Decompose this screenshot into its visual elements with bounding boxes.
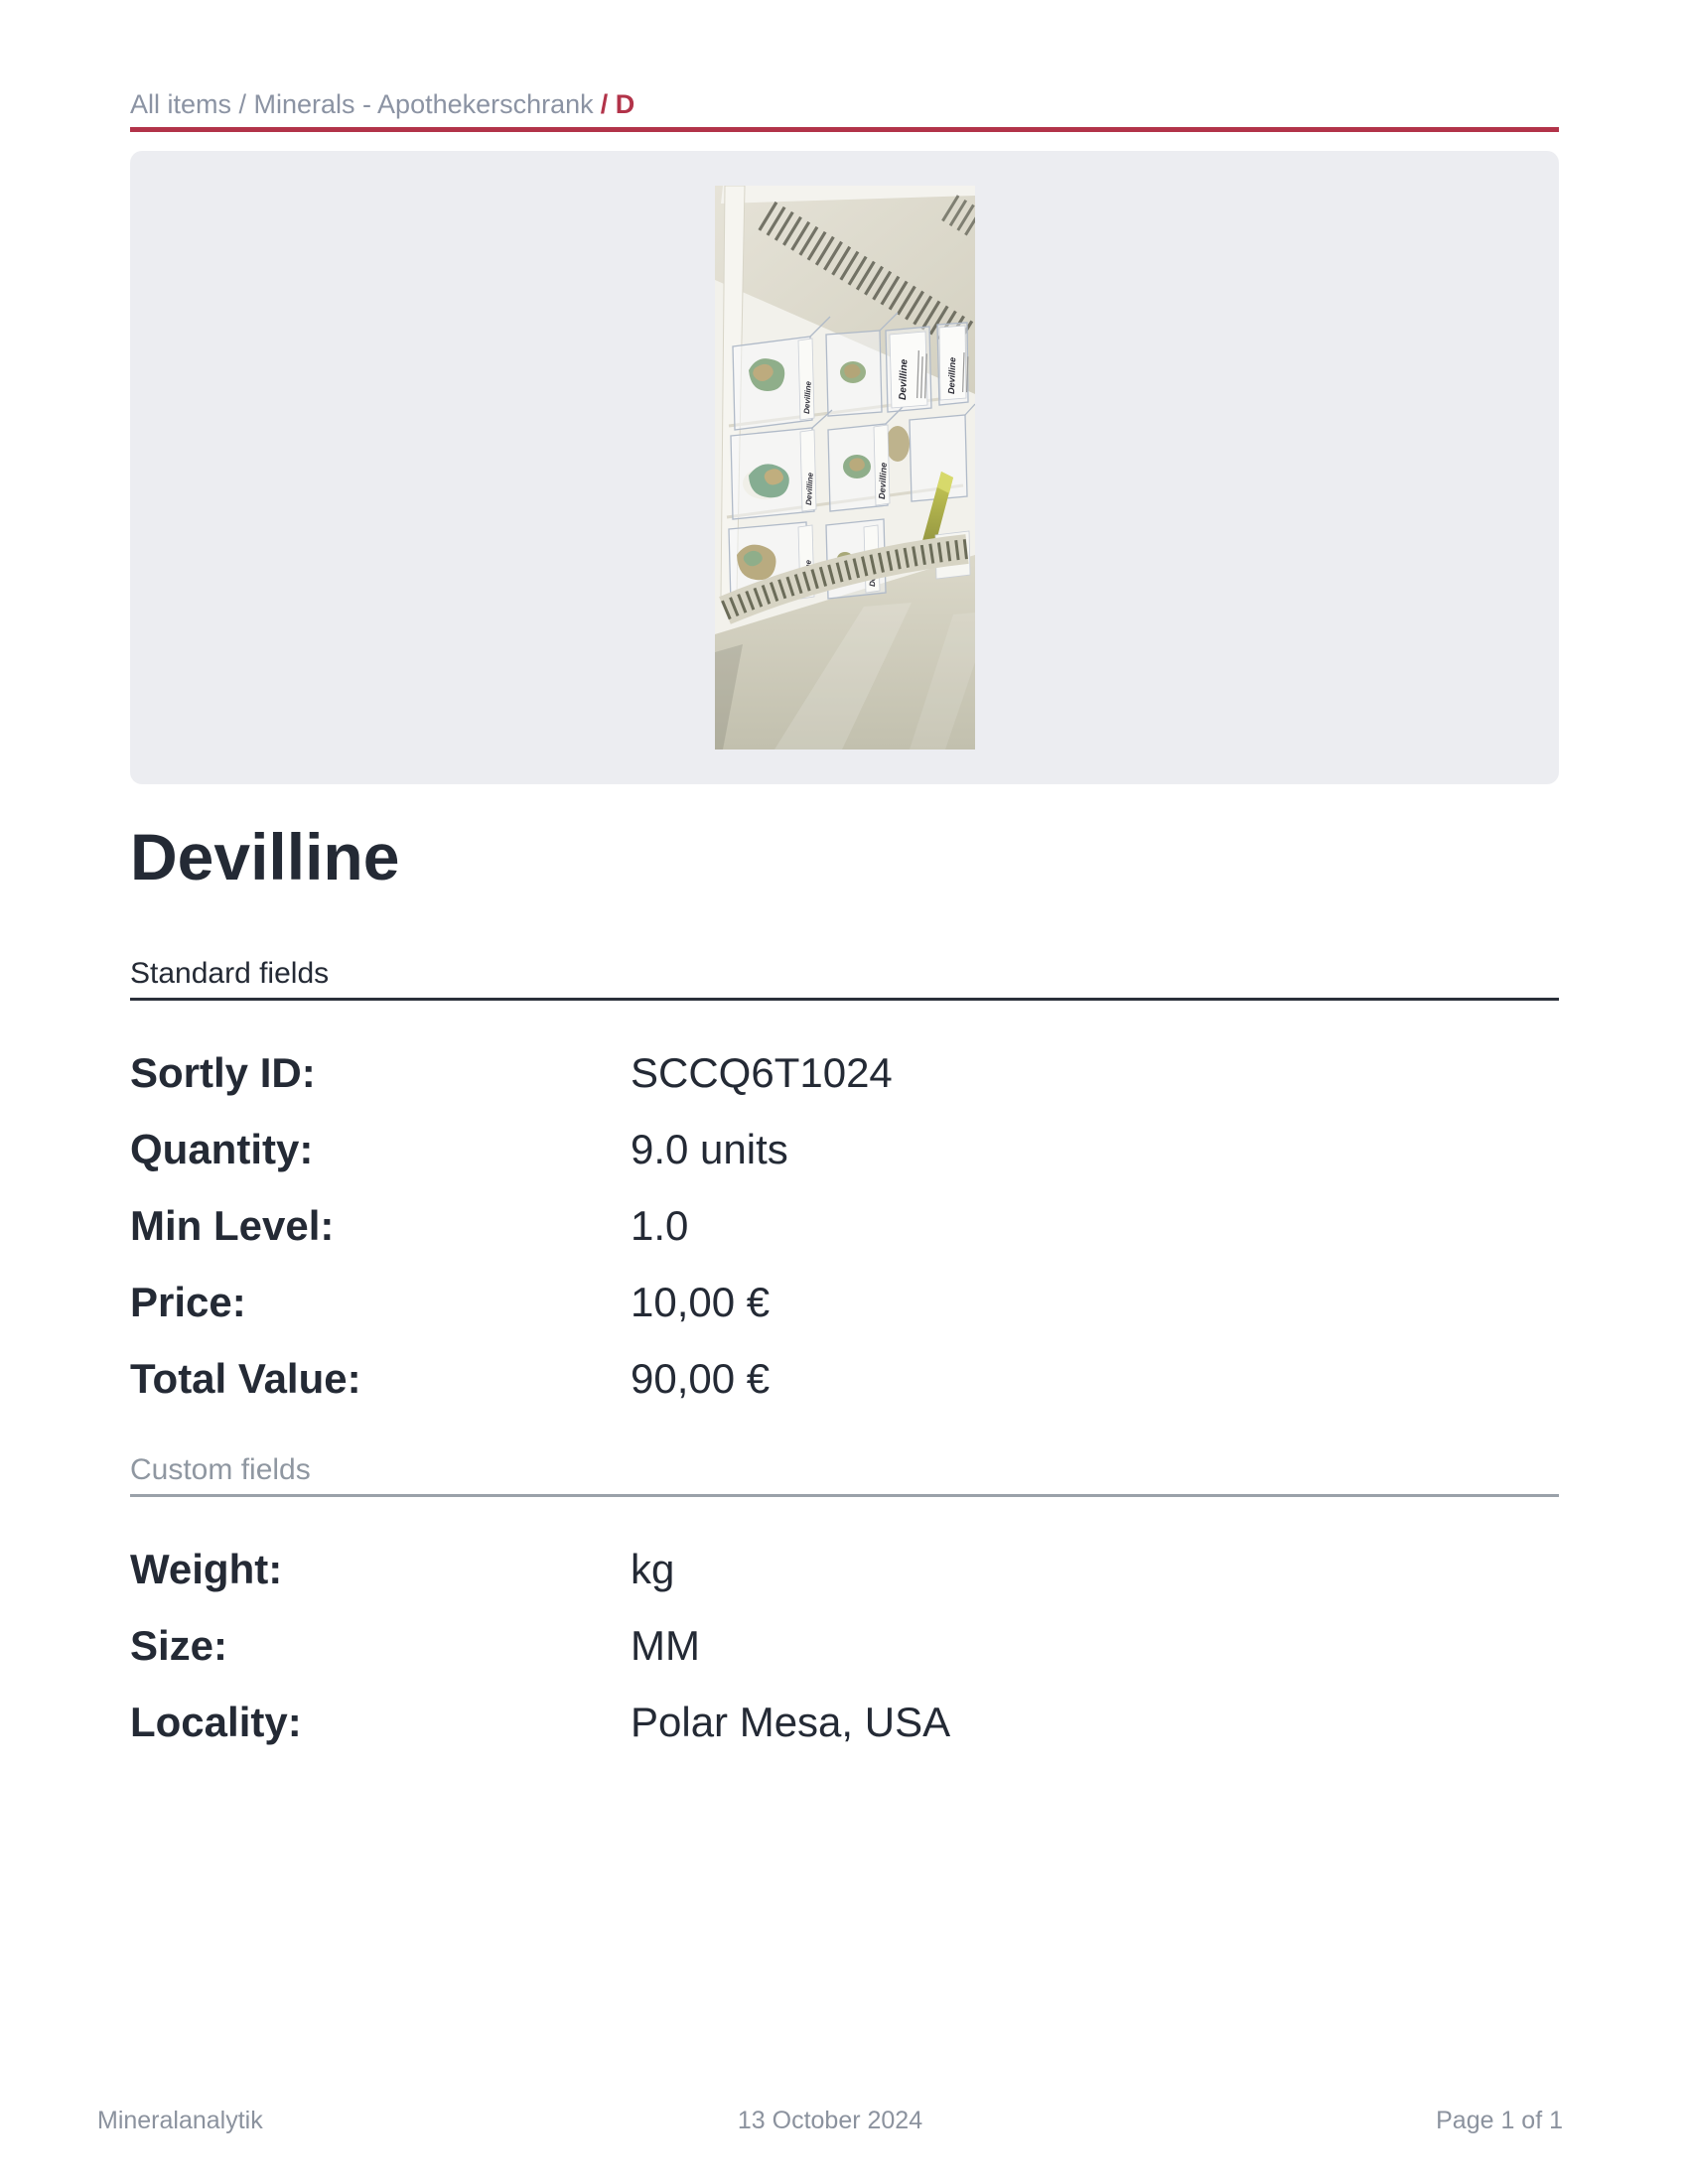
mineral-label-text: Devilline — [946, 357, 957, 394]
photo-panel: Devilline Devilline Devilline Devilline — [130, 151, 1559, 784]
document-page: All items / Minerals - Apothekerschrank/… — [0, 0, 1688, 2184]
field-value: kg — [631, 1545, 1559, 1594]
custom-fields-list: Weight: kg Size: MM Locality: Polar Mesa… — [130, 1545, 1559, 1747]
breadcrumb: All items / Minerals - Apothekerschrank/… — [130, 91, 1559, 132]
field-row-locality: Locality: Polar Mesa, USA — [130, 1698, 1559, 1747]
field-row-min-level: Min Level: 1.0 — [130, 1201, 1559, 1251]
field-row-size: Size: MM — [130, 1621, 1559, 1671]
field-value: 9.0 units — [631, 1125, 1559, 1174]
mineral-label-text: Devilline — [877, 463, 889, 499]
breadcrumb-path-link[interactable]: All items / Minerals - Apothekerschrank — [130, 89, 594, 119]
field-value: SCCQ6T1024 — [631, 1048, 1559, 1098]
footer-page-number: Page 1 of 1 — [1074, 2106, 1563, 2135]
section-heading-custom-fields: Custom fields — [130, 1455, 1559, 1497]
field-label: Total Value: — [130, 1354, 631, 1404]
page-footer: Mineralanalytik 13 October 2024 Page 1 o… — [97, 2106, 1563, 2135]
field-value: MM — [631, 1621, 1559, 1671]
field-value: Polar Mesa, USA — [631, 1698, 1559, 1747]
field-value: 10,00 € — [631, 1278, 1559, 1327]
content-column: All items / Minerals - Apothekerschrank/… — [130, 0, 1559, 1774]
mineral-label-text: Devilline — [898, 358, 910, 400]
page-title: Devilline — [130, 824, 1559, 889]
field-label: Min Level: — [130, 1201, 631, 1251]
mineral-label-text: Devilline — [802, 380, 813, 414]
field-label: Sortly ID: — [130, 1048, 631, 1098]
footer-company: Mineralanalytik — [97, 2106, 586, 2135]
field-row-price: Price: 10,00 € — [130, 1278, 1559, 1327]
section-heading-standard-fields: Standard fields — [130, 959, 1559, 1001]
field-value: 90,00 € — [631, 1354, 1559, 1404]
field-label: Locality: — [130, 1698, 631, 1747]
field-row-quantity: Quantity: 9.0 units — [130, 1125, 1559, 1174]
standard-fields-list: Sortly ID: SCCQ6T1024 Quantity: 9.0 unit… — [130, 1048, 1559, 1404]
footer-date: 13 October 2024 — [586, 2106, 1074, 2135]
mineral-label-text: Devilline — [804, 472, 815, 505]
field-label: Quantity: — [130, 1125, 631, 1174]
field-row-sortly-id: Sortly ID: SCCQ6T1024 — [130, 1048, 1559, 1098]
breadcrumb-current: / D — [601, 89, 635, 119]
field-row-total-value: Total Value: 90,00 € — [130, 1354, 1559, 1404]
field-row-weight: Weight: kg — [130, 1545, 1559, 1594]
field-label: Price: — [130, 1278, 631, 1327]
field-label: Size: — [130, 1621, 631, 1671]
item-photo: Devilline Devilline Devilline Devilline — [715, 186, 975, 750]
field-value: 1.0 — [631, 1201, 1559, 1251]
field-label: Weight: — [130, 1545, 631, 1594]
